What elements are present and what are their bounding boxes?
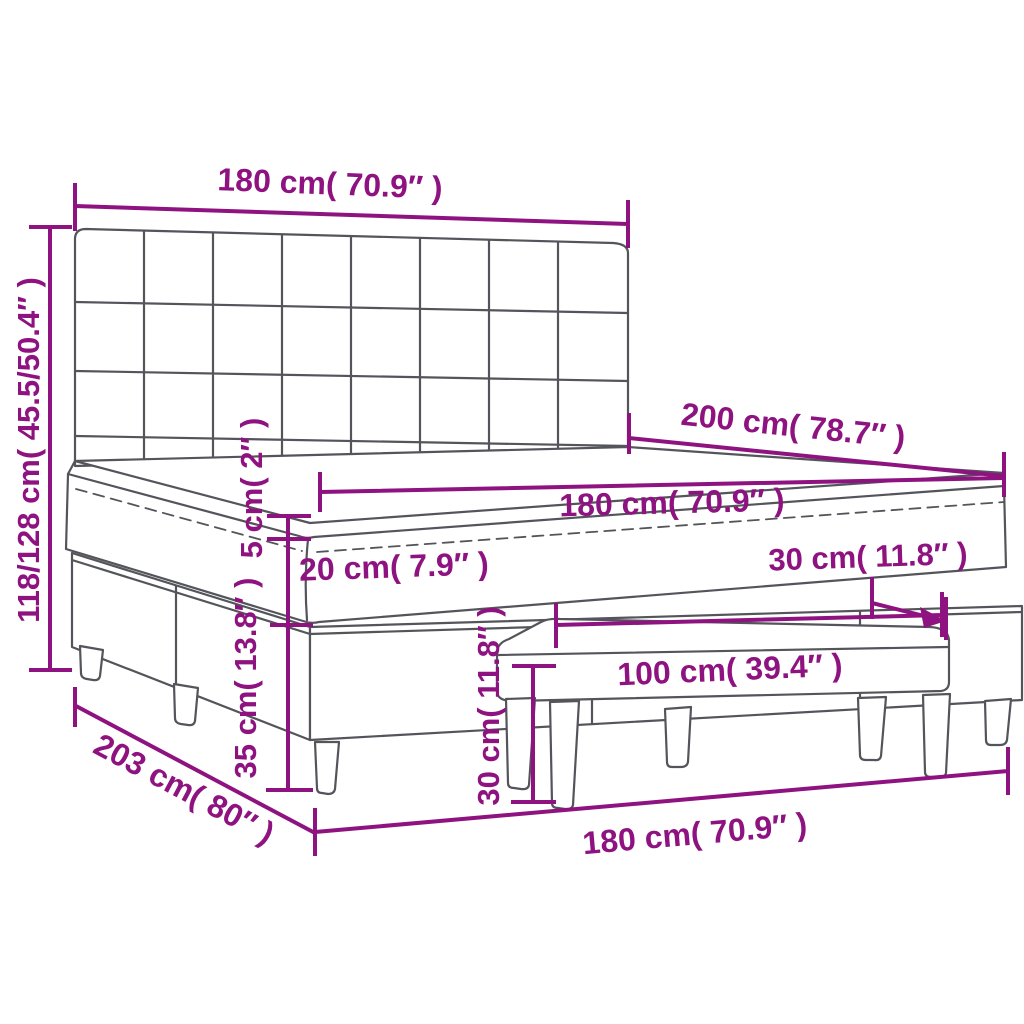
- dim-label-overall-height: 118/128 cm( 45.5/50.4″ ): [11, 277, 46, 623]
- dim-label-bed-width-bottom: 180 cm( 70.9″ ): [581, 806, 809, 861]
- bench-leg: [506, 698, 535, 789]
- dim-label-mattress-thickness: 20 cm( 7.9″ ): [299, 545, 490, 588]
- dim-overall-height: 118/128 cm( 45.5/50.4″ ): [11, 227, 72, 670]
- bed-dimension-diagram: 180 cm( 70.9″ ) 118/128 cm( 45.5/50.4″ )…: [0, 0, 1024, 1024]
- bench-leg: [550, 701, 579, 809]
- dim-label-headboard-width: 180 cm( 70.9″ ): [217, 161, 443, 206]
- dim-label-topper-thickness: 5 cm( 2″ ): [234, 418, 269, 559]
- bed-leg: [315, 742, 339, 794]
- bed-leg: [174, 684, 198, 725]
- dimension-diagram-canvas: 180 cm( 70.9″ ) 118/128 cm( 45.5/50.4″ )…: [0, 0, 1024, 1024]
- dim-label-mattress-width: 180 cm( 70.9″ ): [559, 482, 785, 524]
- bench-leg: [858, 697, 886, 760]
- dim-label-base-leg-height: 35 cm( 13.8″ ): [228, 578, 263, 779]
- headboard: [75, 229, 628, 466]
- dim-label-bench-height: 30 cm( 11.8″ ): [471, 606, 506, 805]
- bench-leg: [923, 694, 950, 777]
- bed-leg: [665, 707, 691, 767]
- bed-leg: [985, 699, 1011, 745]
- dim-label-bench-depth: 30 cm( 11.8″ ): [768, 536, 968, 578]
- dim-bed-width-bottom: 180 cm( 70.9″ ): [315, 747, 1008, 861]
- bed-leg: [80, 646, 103, 680]
